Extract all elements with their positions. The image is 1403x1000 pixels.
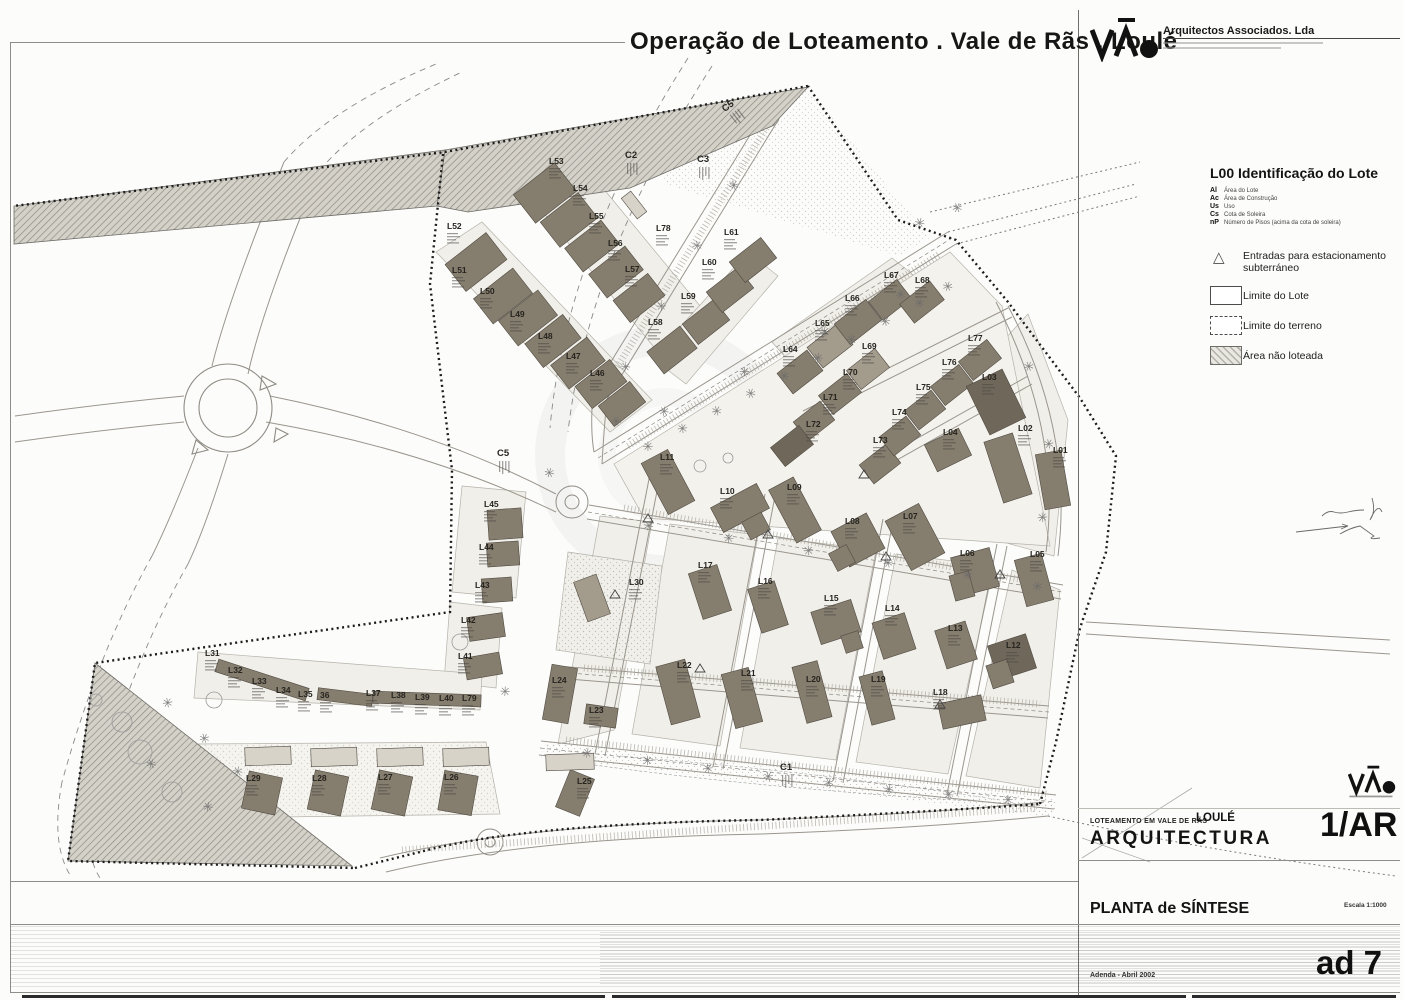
frame-top-line <box>10 42 625 43</box>
stat-line <box>702 272 715 273</box>
vao-logo-mark-small <box>1348 764 1398 798</box>
lot-label: L01 <box>1053 445 1068 455</box>
bottom-edge-mark <box>22 995 605 998</box>
lot-label: L31 <box>205 648 220 658</box>
stat-line <box>577 794 586 795</box>
stat-line <box>452 283 461 284</box>
stat-line <box>461 633 470 634</box>
lot-label: L05 <box>1030 549 1045 559</box>
stat-line <box>312 794 324 795</box>
stat-line <box>510 330 522 331</box>
stat-line <box>276 703 285 704</box>
stat-line <box>480 307 492 308</box>
abbrev-row: nPNúmero de Pisos (acima da cota de sole… <box>1210 219 1400 227</box>
stat-line <box>589 226 602 227</box>
stat-line <box>1018 441 1027 442</box>
stat-line <box>246 788 259 789</box>
lot-label: L76 <box>942 357 957 367</box>
stat-line <box>252 691 265 692</box>
stat-line <box>862 362 874 363</box>
stat-line <box>439 708 452 709</box>
stat-line <box>720 507 732 508</box>
stat-line <box>960 566 969 567</box>
stat-line <box>916 394 927 395</box>
stat-line <box>968 345 979 346</box>
stat-line <box>933 705 942 706</box>
stat-line <box>791 775 792 787</box>
bottom-edge-mark <box>612 995 1186 998</box>
stat-line <box>656 244 668 245</box>
stat-line <box>702 278 714 279</box>
stat-line <box>699 167 700 178</box>
lot-label: L43 <box>475 580 490 590</box>
stat-line <box>823 407 836 408</box>
stat-line <box>916 397 929 398</box>
lot-label: L53 <box>549 156 564 166</box>
stat-line <box>590 389 602 390</box>
stat-line <box>538 343 549 344</box>
drawing-sheet: ✳✳✳✳✳✳✳✳✳✳✳✳✳✳✳✳✳✳✳✳✳✳✳✳✳✳✳✳✳✳✳✳✳✳✳✳✳✳✳✳… <box>0 0 1403 1000</box>
addendum-note: Adenda - Abril 2002 <box>1090 972 1155 979</box>
lot-label: L57 <box>625 264 640 274</box>
stat-line <box>475 601 487 602</box>
stat-line <box>982 393 994 394</box>
stat-line <box>391 702 402 703</box>
stat-line <box>845 305 856 306</box>
stat-line <box>885 615 896 616</box>
lot-label: L58 <box>648 317 663 327</box>
stat-line <box>439 711 448 712</box>
firm-address-microtext <box>1163 47 1281 49</box>
stat-line <box>885 618 898 619</box>
stat-line <box>484 511 495 512</box>
stat-line <box>943 439 954 440</box>
courtyard-stipple <box>556 552 662 664</box>
stat-line <box>276 697 287 698</box>
stat-line <box>458 672 470 673</box>
legend-heading: L00 Identificação do Lote <box>1210 165 1400 181</box>
stat-line <box>320 702 331 703</box>
stat-line <box>378 784 389 785</box>
lot-label: L16 <box>758 576 773 586</box>
lot-label: L42 <box>461 615 476 625</box>
tree-icon: ✳ <box>159 693 177 712</box>
stat-line <box>502 461 503 474</box>
stat-line <box>698 572 709 573</box>
lot-label: L68 <box>915 275 930 285</box>
abbrev-key: Al <box>1210 187 1224 195</box>
lot-label: L72 <box>806 419 821 429</box>
stat-line <box>633 163 634 172</box>
stat-line <box>205 663 218 664</box>
stat-line <box>484 514 497 515</box>
stat-line <box>1006 658 1015 659</box>
stat-line <box>892 419 903 420</box>
stat-line <box>741 689 753 690</box>
stat-line <box>948 644 960 645</box>
stat-line <box>452 277 463 278</box>
stat-line <box>708 167 709 179</box>
lot-label: L39 <box>415 692 430 702</box>
stat-line <box>815 336 824 337</box>
tree-icon: ✳ <box>196 731 214 746</box>
stat-line <box>823 404 834 405</box>
stat-line <box>484 517 493 518</box>
stat-line <box>884 285 897 286</box>
stat-line <box>552 690 565 691</box>
tree-icon: ✳ <box>812 350 824 366</box>
lot-label: L17 <box>698 560 713 570</box>
lot-label: L64 <box>783 344 798 354</box>
stat-line <box>252 694 261 695</box>
abbrev-row: AcÁrea de Construção <box>1210 195 1400 203</box>
lot-label: L61 <box>724 227 739 237</box>
stat-line <box>787 503 799 504</box>
stat-line <box>378 787 391 788</box>
lot-label: L54 <box>573 183 588 193</box>
stat-line <box>630 163 631 176</box>
stat-line <box>815 330 826 331</box>
stat-line <box>608 256 617 257</box>
stat-line <box>982 390 991 391</box>
stat-line <box>276 706 288 707</box>
stat-line <box>873 453 882 454</box>
stat-line <box>933 699 944 700</box>
stat-line <box>444 793 456 794</box>
tree-icon: ✳ <box>499 684 511 700</box>
building <box>487 508 523 540</box>
lot-label: L66 <box>845 293 860 303</box>
stat-line <box>720 501 733 502</box>
stat-line <box>452 280 465 281</box>
stat-line <box>823 410 832 411</box>
stat-line <box>783 362 792 363</box>
stat-line <box>982 384 993 385</box>
stat-line <box>625 276 636 277</box>
stat-line <box>916 403 928 404</box>
stat-line <box>845 314 857 315</box>
stat-line <box>462 711 471 712</box>
revision-code: ad 7 <box>1316 944 1382 982</box>
stat-line <box>566 372 578 373</box>
lot-label: L46 <box>590 368 605 378</box>
stat-line <box>845 311 854 312</box>
tree-icon: ✳ <box>721 532 737 544</box>
stat-line <box>1030 570 1042 571</box>
stat-line <box>479 557 492 558</box>
lot-limit-swatch <box>1210 286 1242 305</box>
area-label: C3 <box>697 154 709 165</box>
stat-line <box>815 339 827 340</box>
abbrev-row: CsCota de Soleira <box>1210 211 1400 219</box>
stat-line <box>1053 463 1062 464</box>
stat-line <box>505 461 506 470</box>
stat-line <box>843 388 855 389</box>
stat-line <box>625 279 638 280</box>
stat-line <box>903 532 915 533</box>
abbrev-value: Área de Construção <box>1224 196 1277 202</box>
tree-icon: ✳ <box>949 198 965 216</box>
lot-label: L34 <box>276 685 291 695</box>
stat-line <box>629 592 642 593</box>
stat-line <box>885 624 897 625</box>
stat-line <box>943 442 956 443</box>
stat-line <box>648 329 659 330</box>
stat-line <box>444 790 453 791</box>
stat-line <box>452 286 464 287</box>
stat-line <box>1053 457 1064 458</box>
margin-divider-line <box>1078 10 1079 995</box>
stat-line <box>705 167 706 176</box>
stat-line <box>461 636 473 637</box>
legend: L00 Identificação do Lote AlÁrea do Lote… <box>1210 165 1400 227</box>
stat-line <box>629 598 641 599</box>
stat-line <box>948 635 959 636</box>
legend-entry-label: Área não loteada <box>1243 350 1323 362</box>
abbrev-value: Uso <box>1224 204 1235 210</box>
lot-label: L70 <box>843 367 858 377</box>
stat-line <box>806 440 818 441</box>
stat-line <box>677 672 688 673</box>
stat-line <box>806 689 819 690</box>
stat-line <box>1006 655 1019 656</box>
stat-line <box>787 494 798 495</box>
stat-line <box>228 683 237 684</box>
stat-line <box>845 534 854 535</box>
lot-label: L78 <box>656 223 671 233</box>
stat-line <box>608 259 620 260</box>
stat-line <box>320 705 333 706</box>
stat-line <box>892 428 904 429</box>
stat-line <box>677 675 690 676</box>
stat-line <box>461 627 472 628</box>
stat-line <box>552 687 563 688</box>
stat-line <box>942 372 955 373</box>
lot-label: L11 <box>660 452 674 462</box>
tree-icon: ✳ <box>913 214 928 231</box>
abbrev-row: AlÁrea do Lote <box>1210 187 1400 195</box>
stat-line <box>943 445 952 446</box>
stat-line <box>968 351 977 352</box>
block-plates <box>194 148 1068 818</box>
stat-line <box>1018 435 1029 436</box>
stat-line <box>968 354 980 355</box>
entrance-triangle-icon: △ <box>1213 248 1225 266</box>
stat-line <box>538 349 547 350</box>
stat-line <box>228 686 240 687</box>
stat-line <box>915 293 924 294</box>
stat-line <box>806 431 817 432</box>
stat-line <box>702 269 713 270</box>
stat-line <box>552 693 561 694</box>
stat-line <box>845 531 858 532</box>
stat-line <box>366 709 378 710</box>
stat-line <box>824 611 833 612</box>
stat-line <box>660 467 673 468</box>
firm-underline <box>1163 38 1400 39</box>
stat-line <box>892 425 901 426</box>
lot-label: L52 <box>447 221 462 231</box>
stat-line <box>246 794 258 795</box>
lot-label: L06 <box>960 548 975 558</box>
stat-line <box>549 177 561 178</box>
abbrev-key: Ac <box>1210 195 1224 203</box>
frame-left-line <box>10 42 11 992</box>
stat-line <box>538 352 550 353</box>
stat-line <box>845 528 856 529</box>
stat-line <box>479 560 488 561</box>
stat-line <box>892 422 905 423</box>
stat-line <box>862 359 871 360</box>
stat-line <box>391 711 403 712</box>
lot-label: L67 <box>884 270 899 280</box>
stat-line <box>942 369 953 370</box>
stat-line <box>475 592 486 593</box>
lot-label: L19 <box>871 674 886 684</box>
tree-icon: ✳ <box>201 798 214 814</box>
stat-line <box>681 306 694 307</box>
stat-line <box>625 285 637 286</box>
stat-line <box>862 353 873 354</box>
stat-line <box>660 470 669 471</box>
stat-line <box>625 282 634 283</box>
stat-line <box>378 790 387 791</box>
lot-label: L28 <box>312 773 327 783</box>
lot-label: L49 <box>510 309 525 319</box>
stat-line <box>458 663 469 664</box>
stat-line <box>636 163 637 175</box>
lot-label: L44 <box>479 542 494 552</box>
stat-line <box>573 201 582 202</box>
legend-entry-label: Limite do Lote <box>1243 290 1309 302</box>
stat-line <box>758 597 770 598</box>
titleblock-line-2 <box>1078 860 1400 861</box>
lot-label: L27 <box>378 772 393 782</box>
stat-line <box>884 288 893 289</box>
stat-line <box>782 775 783 786</box>
discipline-label: ARQUITECTURA <box>1090 828 1272 850</box>
firm-address-microtext <box>1163 42 1323 44</box>
stat-line <box>724 248 736 249</box>
lot-label: L56 <box>608 238 623 248</box>
lot-label: L20 <box>806 674 821 684</box>
stat-line <box>916 400 925 401</box>
stat-line <box>391 705 404 706</box>
stat-line <box>577 797 589 798</box>
stat-line <box>824 608 837 609</box>
stat-line <box>960 560 971 561</box>
stat-line <box>843 379 854 380</box>
area-label: C5 <box>497 448 510 459</box>
lot-label: L79 <box>462 693 477 703</box>
stat-line <box>590 386 599 387</box>
stat-line <box>788 775 789 784</box>
lot-label: L35 <box>298 689 313 699</box>
stat-line <box>720 498 731 499</box>
stat-line <box>298 710 310 711</box>
stat-line <box>968 348 981 349</box>
scan-noise-band-dark <box>600 932 1400 986</box>
stat-line <box>1030 567 1039 568</box>
stat-line <box>806 437 815 438</box>
stat-line <box>320 711 332 712</box>
stat-line <box>1030 564 1043 565</box>
lot-label: L22 <box>677 660 692 670</box>
stat-line <box>823 413 835 414</box>
lot-label: L73 <box>873 435 888 445</box>
stat-line <box>677 678 686 679</box>
stat-line <box>843 382 856 383</box>
stat-line <box>415 704 426 705</box>
stat-line <box>415 707 428 708</box>
abbrev-value: Cota de Soleira <box>1224 212 1265 218</box>
lot-label: L65 <box>815 318 830 328</box>
lot-stats <box>656 235 669 246</box>
stat-line <box>590 380 601 381</box>
stat-line <box>589 717 600 718</box>
stat-line <box>885 621 894 622</box>
stat-line <box>589 229 598 230</box>
pencil-scribbles <box>1082 788 1192 862</box>
stat-line <box>549 174 558 175</box>
stat-line <box>549 171 562 172</box>
lot-label: L30 <box>629 577 644 587</box>
stat-line <box>458 669 467 670</box>
stat-line <box>824 605 835 606</box>
stat-line <box>660 464 671 465</box>
lot-label: L09 <box>787 482 802 492</box>
stat-line <box>479 563 491 564</box>
stat-line <box>458 666 471 667</box>
stat-line <box>948 638 961 639</box>
stat-line <box>724 242 737 243</box>
stat-line <box>871 689 884 690</box>
stat-line <box>785 775 786 788</box>
stat-line <box>862 356 875 357</box>
tree-icon: ✳ <box>654 300 669 311</box>
stat-line <box>1053 460 1066 461</box>
lot-label: L29 <box>246 773 261 783</box>
stat-line <box>741 683 754 684</box>
stat-line <box>462 714 474 715</box>
lot-label: L21 <box>741 668 756 678</box>
lot-label: L48 <box>538 331 553 341</box>
stat-line <box>590 383 603 384</box>
stat-line <box>246 791 255 792</box>
stat-line <box>415 710 424 711</box>
stat-line <box>1030 561 1041 562</box>
stat-line <box>205 666 214 667</box>
stat-line <box>577 791 590 792</box>
stat-line <box>228 677 239 678</box>
stat-line <box>461 630 474 631</box>
stat-line <box>903 526 916 527</box>
lot-label: L10 <box>720 486 735 496</box>
lot-label: L14 <box>885 603 900 613</box>
stat-line <box>698 581 710 582</box>
stat-line <box>943 448 955 449</box>
stat-line <box>783 365 795 366</box>
stat-line <box>508 461 509 473</box>
lot-label: L60 <box>702 257 717 267</box>
stat-line <box>873 447 884 448</box>
stat-line <box>1006 661 1018 662</box>
lot-label: L13 <box>948 623 963 633</box>
stat-line <box>462 708 475 709</box>
stat-line <box>608 253 621 254</box>
lot-label: L08 <box>845 516 860 526</box>
tree-icon: ✳ <box>643 439 654 454</box>
